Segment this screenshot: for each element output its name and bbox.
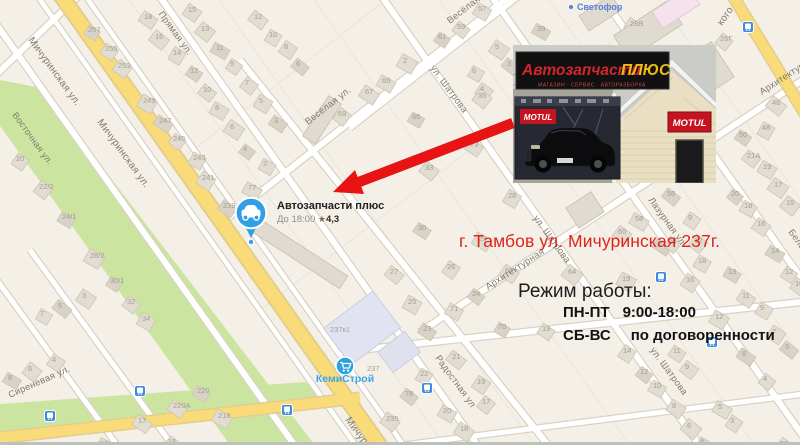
- house-number: 30: [418, 223, 426, 232]
- house-number: 2: [263, 159, 267, 168]
- house-number: 69: [338, 109, 346, 118]
- weekday-hours: 9:00-18:00: [623, 304, 696, 321]
- house-number: 9: [688, 213, 692, 222]
- transport-stop-icon[interactable]: [45, 411, 56, 422]
- house-number: 220А: [173, 401, 191, 410]
- house-number: 237: [367, 364, 380, 373]
- house-number: 218: [218, 411, 231, 420]
- pin-label[interactable]: Автозапчасти плюс До 18:00 ★4,3: [277, 200, 384, 226]
- house-number: 17: [482, 397, 490, 406]
- house-number: 26Г: [720, 34, 732, 43]
- working-hours-title: Режим работы:: [518, 281, 652, 303]
- house-number: 30/1: [110, 276, 125, 285]
- house-number: 9: [230, 59, 234, 68]
- house-number: 48: [762, 123, 770, 132]
- house-number: 18: [698, 256, 706, 265]
- house-number: 8: [672, 401, 676, 410]
- weekend-hours: по договоренности: [631, 327, 775, 344]
- house-number: 28/2: [90, 251, 105, 260]
- pin-rating: 4,3: [326, 214, 339, 225]
- house-number: 20: [731, 189, 739, 198]
- map-pin-autoparts[interactable]: Автозапчасти плюс До 18:00 ★4,3: [233, 197, 403, 249]
- sign-title2-text: ПЛЮС: [621, 62, 671, 79]
- house-number: 33: [425, 163, 433, 172]
- house-number: 20: [16, 154, 24, 163]
- house-number: 249: [143, 96, 156, 105]
- house-number: 28В: [630, 19, 643, 28]
- house-number: 57: [478, 4, 486, 13]
- house-number: 27: [390, 267, 398, 276]
- house-number: 20: [443, 406, 451, 415]
- house-number: 3: [82, 291, 86, 300]
- house-number: 3: [507, 59, 511, 68]
- house-number: 22/2: [39, 182, 54, 191]
- house-number: 6: [230, 122, 234, 131]
- working-hours-weekend: СБ-ВС по договоренности: [563, 327, 775, 344]
- house-number: 257: [88, 25, 101, 34]
- house-number: 3: [730, 416, 734, 425]
- house-number: 64: [568, 267, 576, 276]
- working-hours-weekdays: ПН-ПТ 9:00-18:00: [563, 304, 696, 321]
- house-number: 9: [685, 362, 689, 371]
- house-number: 12: [254, 12, 262, 21]
- storefront-photo: Автозапчасти ПЛЮС МАГАЗИН · СЕРВИС · АВТ…: [513, 45, 716, 183]
- house-number: 70: [498, 322, 506, 331]
- svg-text:КемиСтрой: КемиСтрой: [316, 373, 374, 385]
- pin-hours: До 18:00: [277, 214, 315, 225]
- weekday-range: ПН-ПТ: [563, 304, 610, 321]
- house-number: 65: [382, 76, 390, 85]
- house-number: 9: [760, 303, 764, 312]
- motul-banner-text: MOTUL: [524, 113, 553, 122]
- house-number: 66: [412, 112, 420, 121]
- house-number: 241: [202, 173, 215, 182]
- poi-svetofor[interactable]: Светофор: [569, 2, 623, 12]
- house-number: 35: [478, 91, 486, 100]
- transport-stop-icon[interactable]: [135, 386, 146, 397]
- house-number: 15: [786, 198, 794, 207]
- house-number: 8: [215, 103, 219, 112]
- house-number: 11: [742, 291, 750, 300]
- house-number: 46: [772, 98, 780, 107]
- house-number: 14: [771, 246, 779, 255]
- house-number: 255: [105, 44, 118, 53]
- house-number: 17: [138, 416, 146, 425]
- pin-subtitle: До 18:00 ★4,3: [277, 214, 384, 226]
- house-number: 8: [8, 373, 12, 382]
- house-number: 6: [472, 66, 476, 75]
- house-number: 19: [763, 162, 771, 171]
- house-number: 6: [687, 421, 691, 430]
- house-number: 50: [739, 130, 747, 139]
- house-number: 17: [774, 180, 782, 189]
- house-number: 12: [190, 66, 198, 75]
- sign-subtitle-text: МАГАЗИН · СЕРВИС · АВТОРАЗБОРКА: [538, 83, 646, 89]
- map-canvas[interactable]: Мичуринская ул.Мичуринская ул.Мичуринска…: [0, 0, 800, 445]
- pin-title[interactable]: Автозапчасти плюс: [277, 200, 384, 213]
- house-number: 21: [452, 352, 460, 361]
- house-number: 7: [245, 78, 249, 87]
- house-number: 237к1: [330, 325, 350, 334]
- house-number: 26: [447, 262, 455, 271]
- house-number: 220: [197, 386, 210, 395]
- house-number: 19: [477, 377, 485, 386]
- house-number: 22: [420, 369, 428, 378]
- house-number: 235: [386, 414, 399, 423]
- address-annotation: г. Тамбов ул. Мичуринская 237г.: [459, 231, 720, 252]
- house-number: 67: [365, 87, 373, 96]
- house-number: 8: [284, 42, 288, 51]
- house-number: 24/1: [62, 212, 77, 221]
- house-number: 73: [470, 140, 478, 149]
- car-pin-icon[interactable]: [233, 197, 269, 247]
- weekend-range: СБ-ВС: [563, 327, 611, 344]
- house-number: 247: [159, 116, 172, 125]
- svg-text:Светофор: Светофор: [577, 2, 623, 12]
- house-number: 245: [173, 134, 186, 143]
- house-number: 6: [28, 364, 32, 373]
- house-number: 28: [508, 191, 516, 200]
- house-number: 8: [742, 349, 746, 358]
- house-number: 24: [472, 289, 480, 298]
- house-number: 11: [216, 43, 224, 52]
- house-number: 12: [785, 267, 793, 276]
- house-number: 4: [243, 144, 247, 153]
- house-number: 16: [155, 32, 163, 41]
- house-number: 58: [635, 214, 643, 223]
- house-number: 21А: [747, 151, 760, 160]
- house-number: 10: [795, 279, 800, 288]
- house-number: 4: [763, 374, 767, 383]
- house-number: 12: [640, 367, 648, 376]
- house-number: 15: [188, 5, 196, 14]
- house-number: 4: [52, 355, 56, 364]
- house-number: 18: [460, 424, 468, 433]
- house-number: 77: [248, 183, 256, 192]
- house-number: 23: [423, 324, 431, 333]
- house-number: 5: [259, 96, 263, 105]
- transport-stop-icon[interactable]: [282, 405, 293, 416]
- house-number: 39: [537, 24, 545, 33]
- car-banner: MOTUL: [515, 97, 620, 179]
- house-number: 5: [58, 301, 62, 310]
- house-number: 14: [623, 346, 631, 355]
- house-number: 11: [673, 346, 681, 355]
- house-number: 7: [40, 309, 44, 318]
- house-number: 59: [457, 22, 465, 31]
- house-number: 2: [403, 56, 407, 65]
- house-number: 10: [203, 85, 211, 94]
- house-number: 5: [785, 342, 789, 351]
- house-number: 71: [450, 304, 458, 313]
- house-number: 19: [542, 324, 550, 333]
- house-number: 13: [728, 267, 736, 276]
- transport-stop-icon[interactable]: [422, 383, 433, 394]
- house-number: 32: [127, 297, 135, 306]
- house-number: 61: [438, 32, 446, 41]
- house-number: 16: [757, 219, 765, 228]
- house-number: 243: [193, 153, 206, 162]
- house-number: 3: [274, 116, 278, 125]
- motul-wall-text: MOTUL: [673, 118, 707, 129]
- house-number: 25: [408, 297, 416, 306]
- house-number: 12: [715, 312, 723, 321]
- house-number: 10: [653, 381, 661, 390]
- transport-stop-icon[interactable]: [743, 22, 754, 33]
- house-number: 10: [269, 30, 277, 39]
- house-number: 18: [744, 201, 752, 210]
- house-number: 5: [495, 42, 499, 51]
- transport-stop-icon[interactable]: [656, 272, 667, 283]
- house-number: 56: [667, 189, 675, 198]
- house-number: 14: [173, 48, 181, 57]
- house-number: 16: [686, 275, 694, 284]
- house-number: 67: [505, 266, 513, 275]
- shop-door: [676, 140, 703, 183]
- storefront-photo-scene: Автозапчасти ПЛЮС МАГАЗИН · СЕРВИС · АВТ…: [513, 45, 716, 183]
- house-number: 34: [142, 314, 150, 323]
- house-number: 13: [201, 24, 209, 33]
- house-number: 5: [718, 402, 722, 411]
- rating-star-icon: ★: [318, 214, 326, 224]
- shop-sign: Автозапчасти ПЛЮС МАГАЗИН · СЕРВИС · АВТ…: [516, 52, 671, 89]
- house-number: 6: [296, 59, 300, 68]
- house-number: 18: [144, 12, 152, 21]
- house-number: 253: [118, 61, 131, 70]
- house-number: 78: [405, 389, 413, 398]
